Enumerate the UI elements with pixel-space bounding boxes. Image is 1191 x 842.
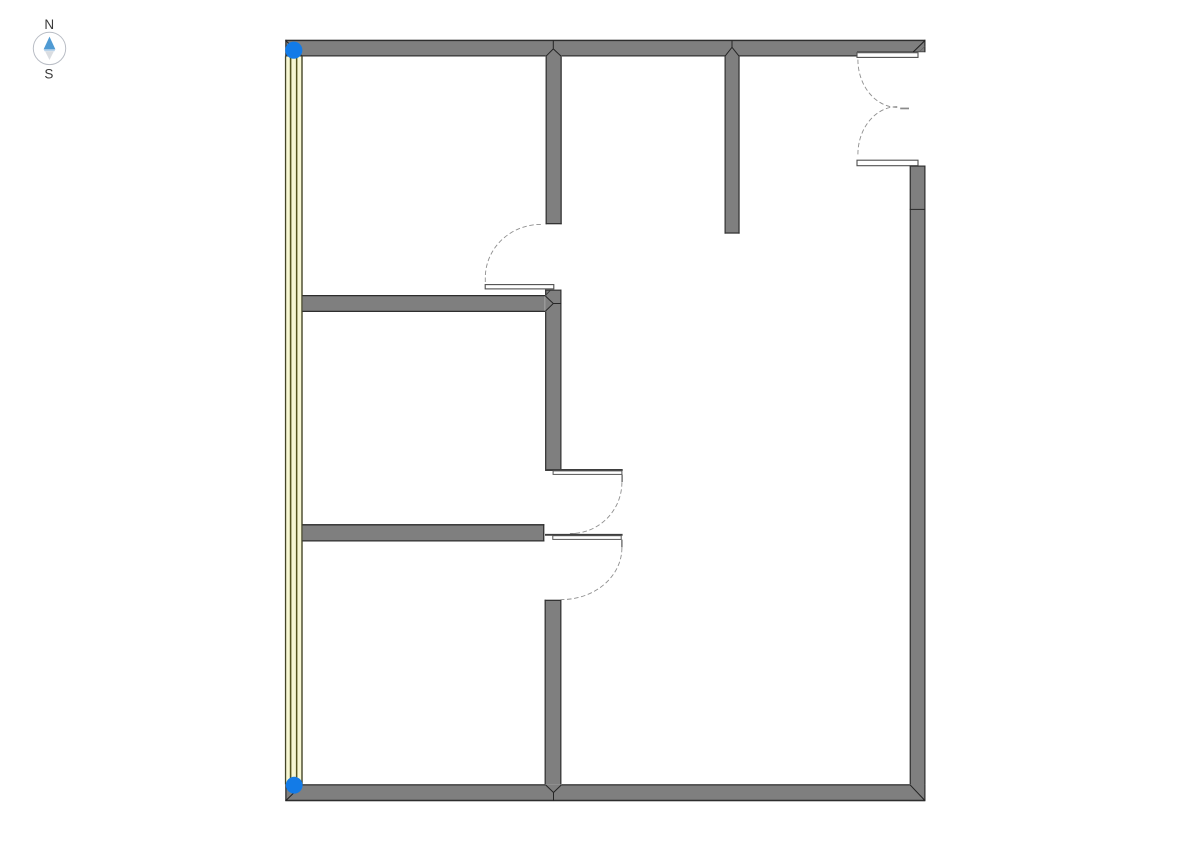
svg-text:N: N xyxy=(44,17,54,32)
svg-text:S: S xyxy=(44,67,53,82)
